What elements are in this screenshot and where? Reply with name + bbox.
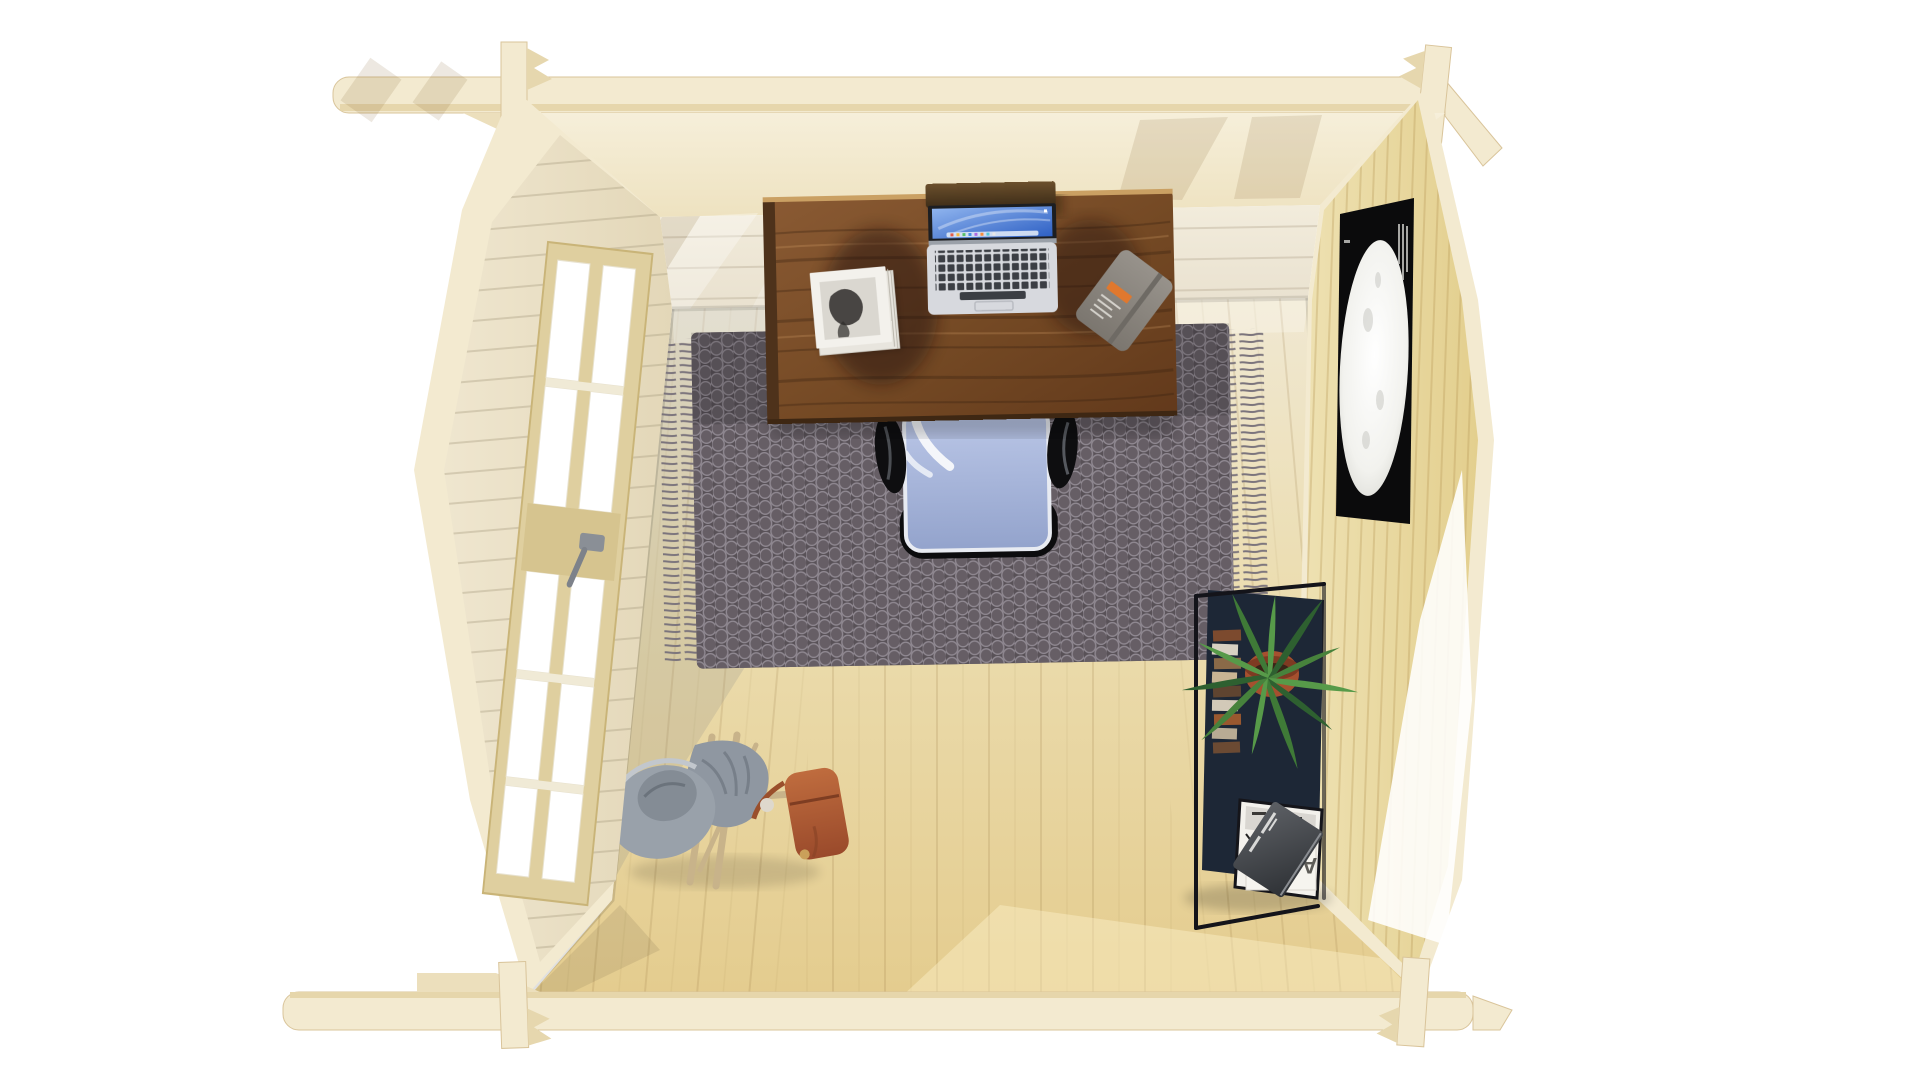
door-mid-rail [521, 503, 621, 581]
laptop-spacebar [960, 291, 1026, 300]
moon-poster [1333, 198, 1414, 524]
back-beam-end-right [1445, 80, 1502, 166]
desk [762, 179, 1178, 425]
laptop-keyboard [935, 248, 1050, 290]
magazine-rack: ANDO [1232, 800, 1325, 899]
coat-stand-shadow [630, 856, 820, 888]
scene-svg: Top-down 3D render of a log cabin home o… [0, 0, 1920, 1080]
laptop [925, 181, 1058, 315]
rug-fringe-left [659, 339, 697, 664]
front-beam-end-right [1473, 996, 1512, 1030]
magazine-stack [810, 265, 902, 357]
front-beam-edge [290, 992, 1466, 998]
laptop-cursor [1044, 209, 1047, 212]
book-stack [1212, 630, 1241, 754]
coat-stand-knob [760, 798, 774, 812]
cabin-office-render: Top-down 3D render of a log cabin home o… [0, 0, 1920, 1080]
